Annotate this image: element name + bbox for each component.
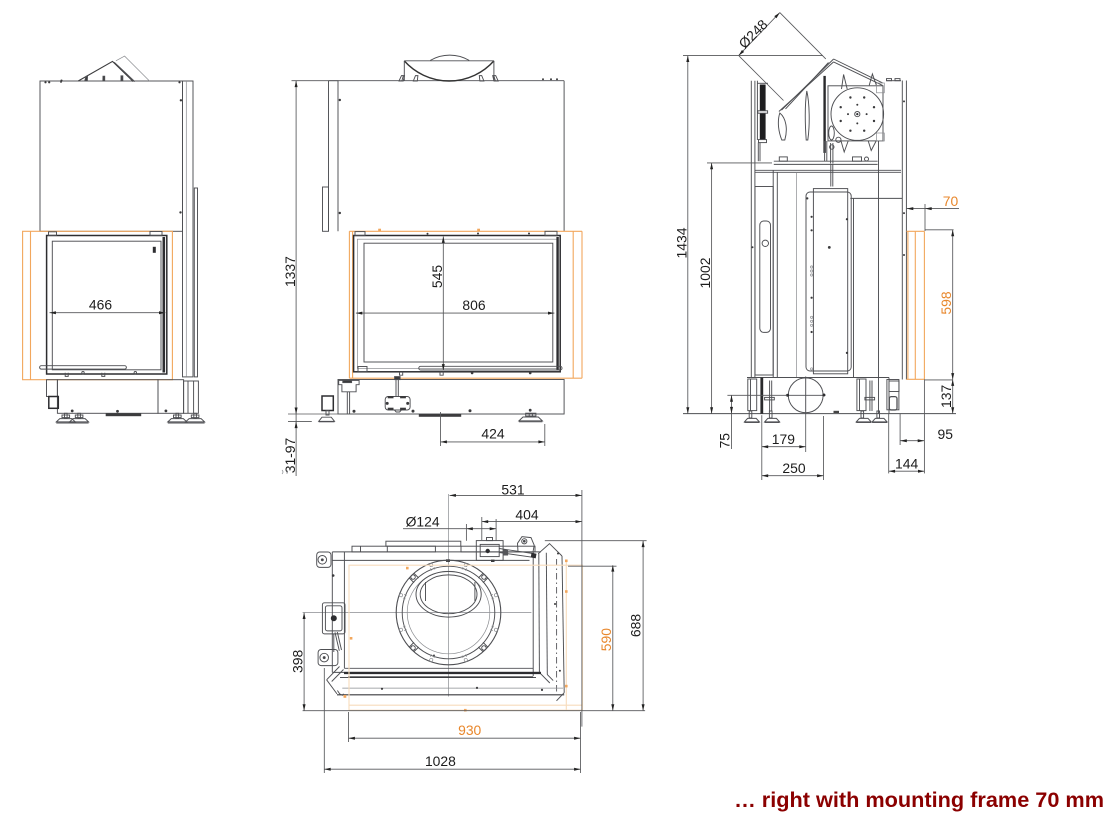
svg-text:930: 930 — [458, 722, 481, 738]
svg-text:… right with mounting frame 70: … right with mounting frame 70 mm — [734, 787, 1104, 812]
svg-text:250: 250 — [782, 460, 805, 476]
svg-text:1002: 1002 — [697, 257, 713, 288]
svg-text:404: 404 — [515, 507, 538, 523]
svg-text:144: 144 — [895, 456, 918, 472]
svg-text:31-97: 31-97 — [282, 437, 298, 473]
svg-text:545: 545 — [429, 265, 445, 288]
svg-text:598: 598 — [938, 291, 954, 314]
svg-text:1028: 1028 — [425, 753, 456, 769]
svg-text:1337: 1337 — [282, 256, 298, 287]
svg-text:398: 398 — [290, 650, 306, 673]
svg-text:179: 179 — [772, 431, 795, 447]
svg-text:466: 466 — [89, 297, 112, 313]
svg-text:1434: 1434 — [674, 227, 690, 258]
svg-text:Ø124: Ø124 — [406, 514, 440, 530]
svg-text:75: 75 — [716, 433, 732, 449]
svg-text:590: 590 — [598, 628, 614, 651]
svg-text:95: 95 — [937, 426, 953, 442]
svg-text:424: 424 — [481, 425, 504, 441]
svg-text:806: 806 — [462, 297, 485, 313]
svg-text:137: 137 — [938, 385, 954, 408]
svg-text:531: 531 — [501, 481, 524, 497]
svg-text:688: 688 — [628, 614, 644, 637]
svg-text:70: 70 — [943, 193, 959, 209]
